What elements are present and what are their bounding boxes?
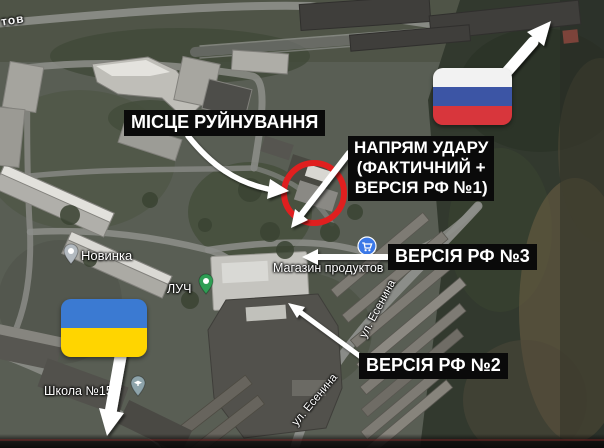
- strike-direction-label-line1: НАПРЯМ УДАРУ: [354, 138, 488, 158]
- bottom-red-line: [0, 439, 604, 441]
- rf-version3-arrow: [302, 249, 387, 265]
- ukraine-flag: [61, 299, 147, 357]
- russia-flag-blue-stripe: [433, 87, 512, 106]
- ukraine-direction-arrow: [99, 354, 124, 436]
- annotated-satellite-map: Новинка ЛУЧ Магазин продуктов Школа №15 …: [0, 0, 604, 448]
- rf-version2-arrow: [288, 303, 361, 357]
- russia-flag: [433, 68, 512, 125]
- bottom-video-shade: [0, 434, 604, 448]
- russia-flag-red-stripe: [433, 106, 512, 125]
- ukraine-flag-blue-stripe: [61, 299, 147, 328]
- strike-direction-label-line2: (ФАКТИЧНИЙ +: [354, 158, 488, 178]
- rf-version3-label: ВЕРСІЯ РФ №3: [388, 244, 537, 270]
- rf-version2-label: ВЕРСІЯ РФ №2: [359, 353, 508, 379]
- ukraine-flag-yellow-stripe: [61, 328, 147, 357]
- annotation-overlay: [0, 0, 604, 448]
- destruction-site-label: МІСЦЕ РУЙНУВАННЯ: [124, 110, 325, 136]
- russia-direction-arrow: [505, 21, 551, 74]
- arrow-to-destruction-site: [188, 136, 289, 199]
- russia-flag-white-stripe: [433, 68, 512, 87]
- strike-direction-label: НАПРЯМ УДАРУ (ФАКТИЧНИЙ + ВЕРСІЯ РФ №1): [348, 136, 494, 201]
- strike-direction-label-line3: ВЕРСІЯ РФ №1): [354, 178, 488, 198]
